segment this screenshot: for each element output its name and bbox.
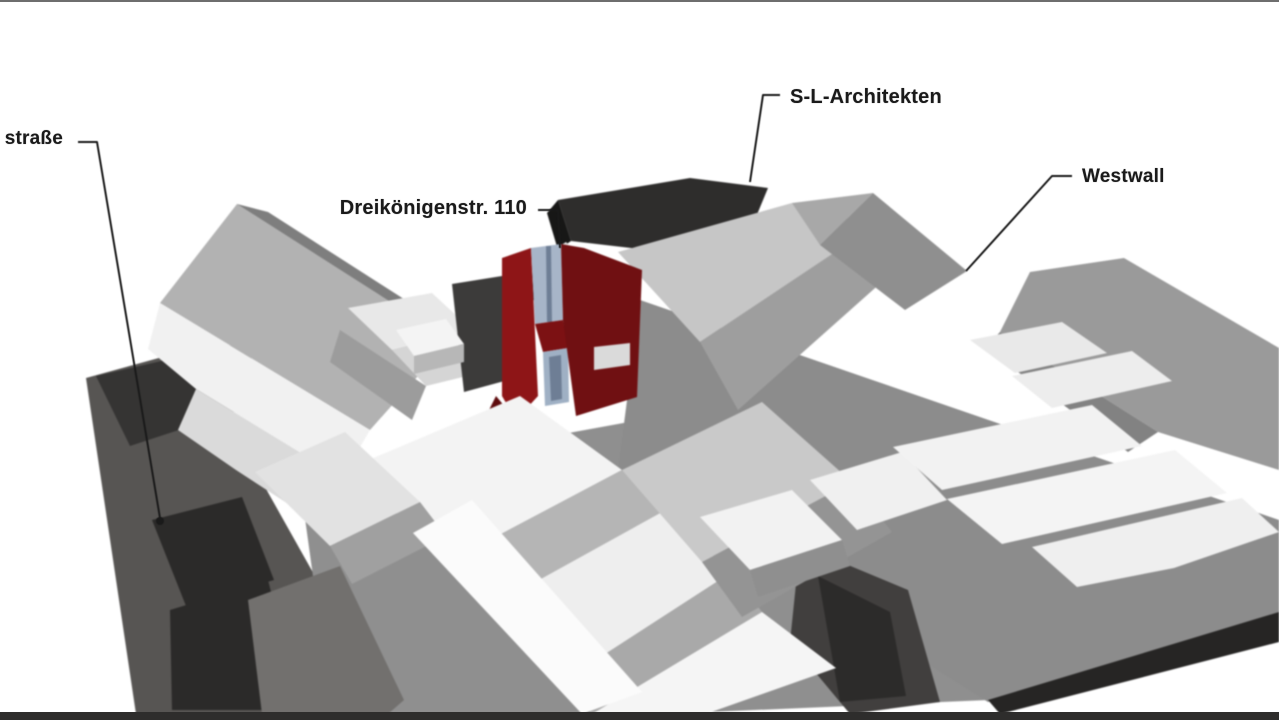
- label-strasse: straße: [5, 128, 63, 150]
- leader-line-westwall: [966, 176, 1072, 271]
- leader-line-dreikoenigenstr-110: [538, 210, 560, 248]
- label-s-l-architekten: S-L-Architekten: [790, 86, 942, 109]
- leader-line-group: [78, 95, 1072, 525]
- bottom-letterbox-bar: [0, 712, 1279, 720]
- label-westwall: Westwall: [1082, 166, 1165, 188]
- video-frame: straße Dreikönigenstr. 110 S-L-Architekt…: [0, 0, 1279, 720]
- leader-lines: [0, 0, 1279, 720]
- top-letterbox-bar: [0, 0, 1279, 2]
- leader-line-s-l-architekten: [750, 95, 780, 182]
- label-dreikoenigenstr-110: Dreikönigenstr. 110: [340, 197, 527, 220]
- leader-dot-strasse: [156, 517, 164, 525]
- leader-line-strasse: [78, 142, 160, 518]
